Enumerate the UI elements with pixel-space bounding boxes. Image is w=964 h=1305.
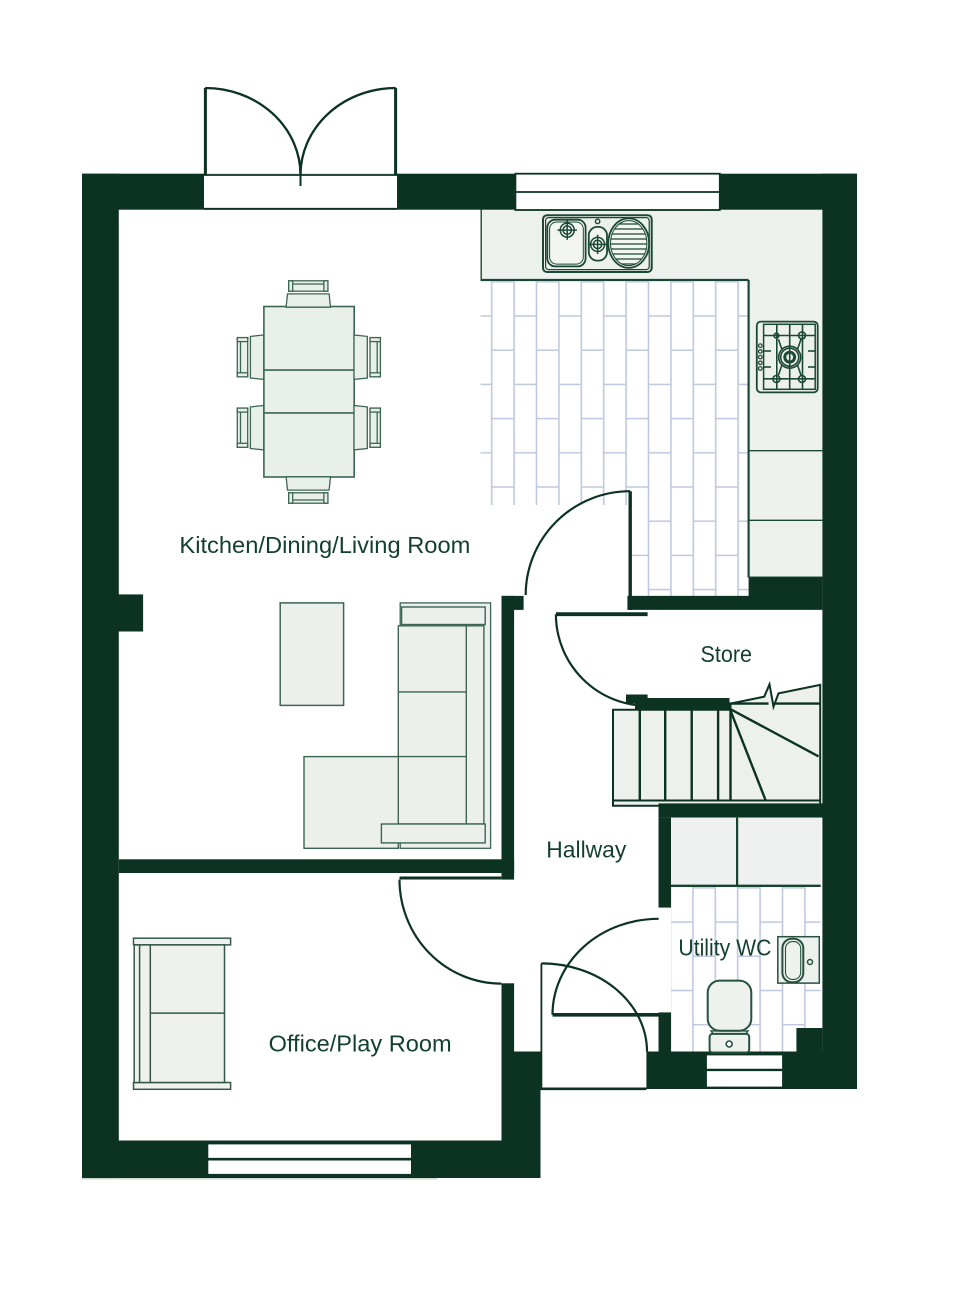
svg-text:Hallway: Hallway: [546, 836, 626, 862]
svg-text:Utility WC: Utility WC: [678, 935, 771, 961]
svg-text:Office/Play Room: Office/Play Room: [269, 1031, 452, 1057]
svg-text:Kitchen/Dining/Living Room: Kitchen/Dining/Living Room: [179, 532, 470, 558]
svg-text:Store: Store: [701, 641, 753, 667]
